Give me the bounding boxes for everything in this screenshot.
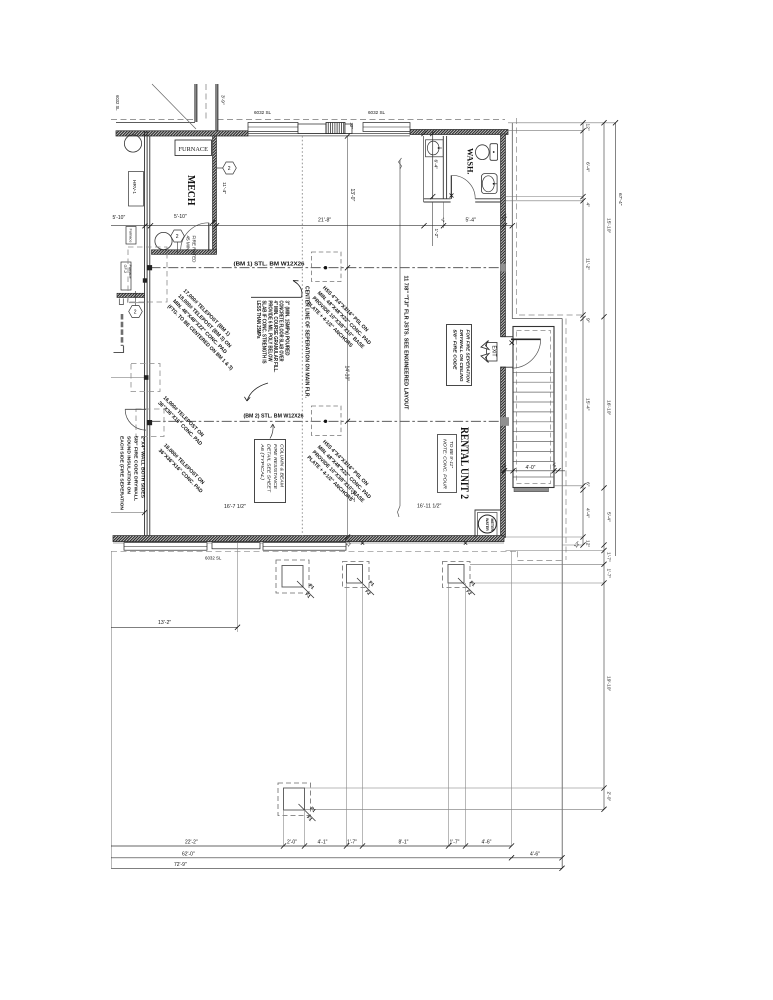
svg-text:DETAIL SEE SHEET: DETAIL SEE SHEET	[266, 444, 272, 493]
svg-text:HRV-1: HRV-1	[131, 180, 137, 194]
svg-text:6032 SL: 6032 SL	[205, 556, 222, 561]
svg-text:4": 4"	[585, 203, 591, 208]
svg-text:6032 SL: 6032 SL	[115, 95, 120, 111]
svg-text:21'-8": 21'-8"	[318, 218, 331, 224]
svg-text:11 7/8" "TJI" FLR JSTS. SEE EN: 11 7/8" "TJI" FLR JSTS. SEE ENGINEERED L…	[402, 276, 408, 410]
svg-text:Furnace: Furnace	[129, 229, 133, 243]
svg-text:5/8" FIRE CODE DRYWALL: 5/8" FIRE CODE DRYWALL	[133, 436, 139, 501]
svg-text:DRYWALL ON CEILING: DRYWALL ON CEILING	[459, 330, 464, 382]
svg-text:15'-10": 15'-10"	[606, 218, 612, 233]
svg-text:2"X4" WALL BOTH SIDES: 2"X4" WALL BOTH SIDES	[140, 436, 146, 499]
svg-text:2: 2	[176, 234, 179, 240]
svg-text:NOTE: CONC. POUR: NOTE: CONC. POUR	[443, 439, 448, 490]
svg-text:13'-0": 13'-0"	[349, 189, 355, 202]
svg-text:15'-4": 15'-4"	[585, 398, 591, 411]
svg-text:12": 12"	[585, 540, 591, 547]
svg-text:4'-6": 4'-6"	[530, 851, 540, 857]
svg-text:2'-0": 2'-0"	[606, 792, 612, 802]
svg-text:16'-7 1/2": 16'-7 1/2"	[224, 504, 246, 510]
svg-text:62'-0": 62'-0"	[182, 851, 195, 857]
svg-text:FIRE RESISTANCE: FIRE RESISTANCE	[272, 444, 278, 490]
svg-text:EXIT: EXIT	[490, 346, 496, 357]
svg-text:11'-4": 11'-4"	[221, 182, 227, 194]
svg-text:2'-0": 2'-0"	[287, 840, 297, 846]
svg-text:4'-0": 4'-0"	[526, 465, 536, 471]
svg-text:4'-4": 4'-4"	[585, 508, 591, 518]
svg-text:2: 2	[134, 310, 137, 316]
svg-text:5'-4": 5'-4"	[606, 512, 612, 522]
svg-text:5'-4": 5'-4"	[466, 218, 476, 224]
svg-text:6032 SL: 6032 SL	[254, 110, 272, 115]
svg-text:12": 12"	[585, 124, 591, 131]
svg-text:A6 (TYPICAL): A6 (TYPICAL)	[259, 443, 265, 481]
svg-text:2: 2	[228, 166, 231, 172]
svg-text:FIRE RATED: FIRE RATED	[192, 236, 197, 264]
svg-text:3'-9": 3'-9"	[220, 95, 226, 105]
svg-text:6'-4": 6'-4"	[433, 160, 439, 170]
svg-text:19'-10": 19'-10"	[606, 676, 612, 691]
svg-text:LESS THAN 25MPa: LESS THAN 25MPa	[255, 301, 261, 339]
svg-text:METER: METER	[490, 519, 494, 532]
svg-text:WASH.: WASH.	[466, 148, 476, 175]
svg-text:WATER: WATER	[485, 518, 489, 531]
svg-text:EACH SIDE (FIRE SEPERATION: EACH SIDE (FIRE SEPERATION	[119, 436, 125, 510]
svg-text:1'-7": 1'-7"	[347, 840, 357, 846]
svg-text:22'-2": 22'-2"	[185, 840, 198, 846]
svg-text:TO BE 9'-11": TO BE 9'-11"	[449, 441, 454, 468]
svg-text:1'-7": 1'-7"	[606, 552, 612, 562]
svg-text:Furnace: Furnace	[128, 265, 132, 279]
svg-text:5/8" FIRE CODE: 5/8" FIRE CODE	[453, 330, 458, 371]
svg-text:14'-10": 14'-10"	[343, 366, 349, 382]
svg-text:FOR FIRE SEPERATION: FOR FIRE SEPERATION	[466, 330, 471, 384]
svg-text:GF-2: GF-2	[123, 265, 127, 274]
svg-text:13'-2": 13'-2"	[158, 620, 171, 626]
svg-text:(BM 1) STL. BM W12X26: (BM 1) STL. BM W12X26	[234, 262, 305, 268]
svg-text:32": 32"	[349, 123, 354, 130]
svg-text:67'-4": 67'-4"	[617, 193, 623, 206]
svg-text:4'-1": 4'-1"	[318, 840, 328, 846]
svg-text:(BM 2) STL. BM W12X26: (BM 2) STL. BM W12X26	[244, 414, 304, 420]
svg-text:MECH: MECH	[185, 175, 197, 206]
svg-text:RENTAL UNIT 2: RENTAL UNIT 2	[458, 427, 470, 499]
svg-text:6'-4": 6'-4"	[585, 162, 591, 172]
svg-text:5'-10": 5'-10"	[174, 214, 187, 220]
svg-text:16'-11 1/2": 16'-11 1/2"	[417, 504, 442, 510]
svg-text:16'-10": 16'-10"	[606, 400, 612, 415]
svg-text:SOUND INSULATION ON: SOUND INSULATION ON	[126, 436, 132, 494]
svg-text:6": 6"	[585, 482, 591, 487]
svg-text:COLUMN & BEAM: COLUMN & BEAM	[279, 444, 285, 488]
svg-text:5'-10": 5'-10"	[113, 215, 126, 221]
svg-text:9": 9"	[585, 318, 591, 323]
svg-text:1'-2": 1'-2"	[433, 229, 439, 239]
svg-text:72'-9": 72'-9"	[174, 862, 187, 868]
svg-text:FURNACE: FURNACE	[179, 147, 209, 153]
svg-text:4'-6": 4'-6"	[482, 840, 492, 846]
svg-text:6032 SL: 6032 SL	[368, 110, 386, 115]
svg-text:11'-2": 11'-2"	[585, 258, 591, 270]
svg-text:45 MIN.: 45 MIN.	[186, 236, 191, 252]
svg-text:8'-1": 8'-1"	[399, 840, 409, 846]
svg-text:1'-7": 1'-7"	[606, 569, 612, 579]
svg-text:1'-7": 1'-7"	[450, 840, 460, 846]
